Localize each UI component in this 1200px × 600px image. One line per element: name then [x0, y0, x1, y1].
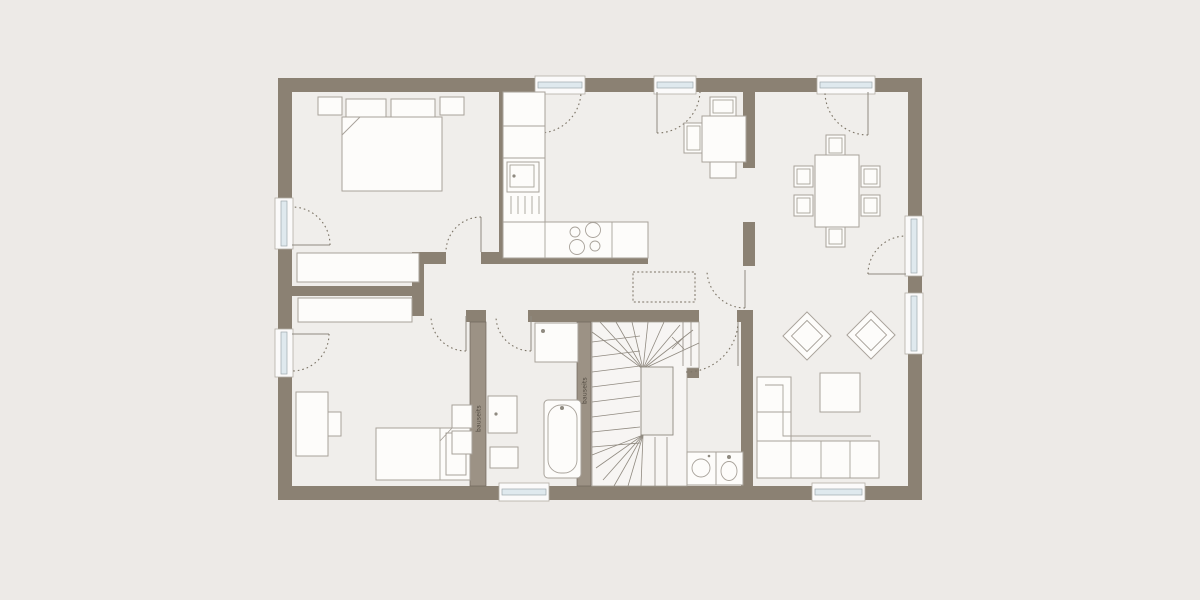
bath-cabinet-icon	[490, 447, 518, 468]
wall-stub-wc	[737, 310, 753, 322]
floor-plan-drawing: bauseits bauseits	[0, 0, 1200, 600]
nightstand-icon	[440, 97, 464, 115]
wall-stub-child-bath	[466, 310, 486, 322]
window-childroom-left	[275, 329, 293, 377]
dining-table-icon	[815, 155, 859, 227]
pillow-icon	[391, 99, 435, 118]
breakfast-table-icon	[702, 116, 746, 162]
wall-outer-right	[908, 78, 922, 500]
window-living-right	[905, 293, 923, 354]
wall-bath-stairs-top	[528, 310, 699, 322]
nightstand-icon	[318, 97, 342, 115]
desk-icon	[296, 392, 328, 456]
desk-chair-icon	[328, 412, 341, 436]
floor-plan-canvas: bauseits bauseits	[0, 0, 1200, 600]
onsite-label: bauseits	[582, 377, 589, 404]
washbasin-icon	[488, 396, 517, 433]
wall-bedroom-childroom	[292, 286, 412, 296]
terrace-door-right	[905, 216, 923, 276]
shower-icon	[535, 323, 578, 362]
shelf-icon	[298, 298, 412, 322]
window-kitchen-top	[535, 76, 585, 94]
pillow-icon	[346, 99, 386, 118]
coffee-table-icon	[820, 373, 860, 412]
shelf-icon	[297, 253, 419, 282]
bathtub-icon	[544, 400, 581, 478]
window-bathroom-bottom	[499, 483, 549, 501]
onsite-label: bauseits	[476, 405, 483, 432]
toilet-icon	[716, 452, 743, 485]
partition-child-bath	[470, 322, 486, 486]
wall-outer-left	[278, 78, 292, 500]
chair-icon	[710, 162, 736, 178]
double-bed-icon	[342, 117, 442, 191]
wardrobe-icon	[452, 431, 472, 454]
wc-room	[687, 452, 743, 485]
staircase	[592, 322, 699, 486]
stair-landing	[641, 367, 673, 435]
window-bedroom-left	[275, 198, 293, 249]
wall-dining-mid	[743, 222, 755, 266]
window-living-bottom	[812, 483, 865, 501]
wardrobe-icon	[452, 405, 472, 428]
washing-machine-icon	[687, 452, 716, 485]
window-hall-top	[654, 76, 696, 94]
french-door-dining-top	[817, 76, 875, 94]
